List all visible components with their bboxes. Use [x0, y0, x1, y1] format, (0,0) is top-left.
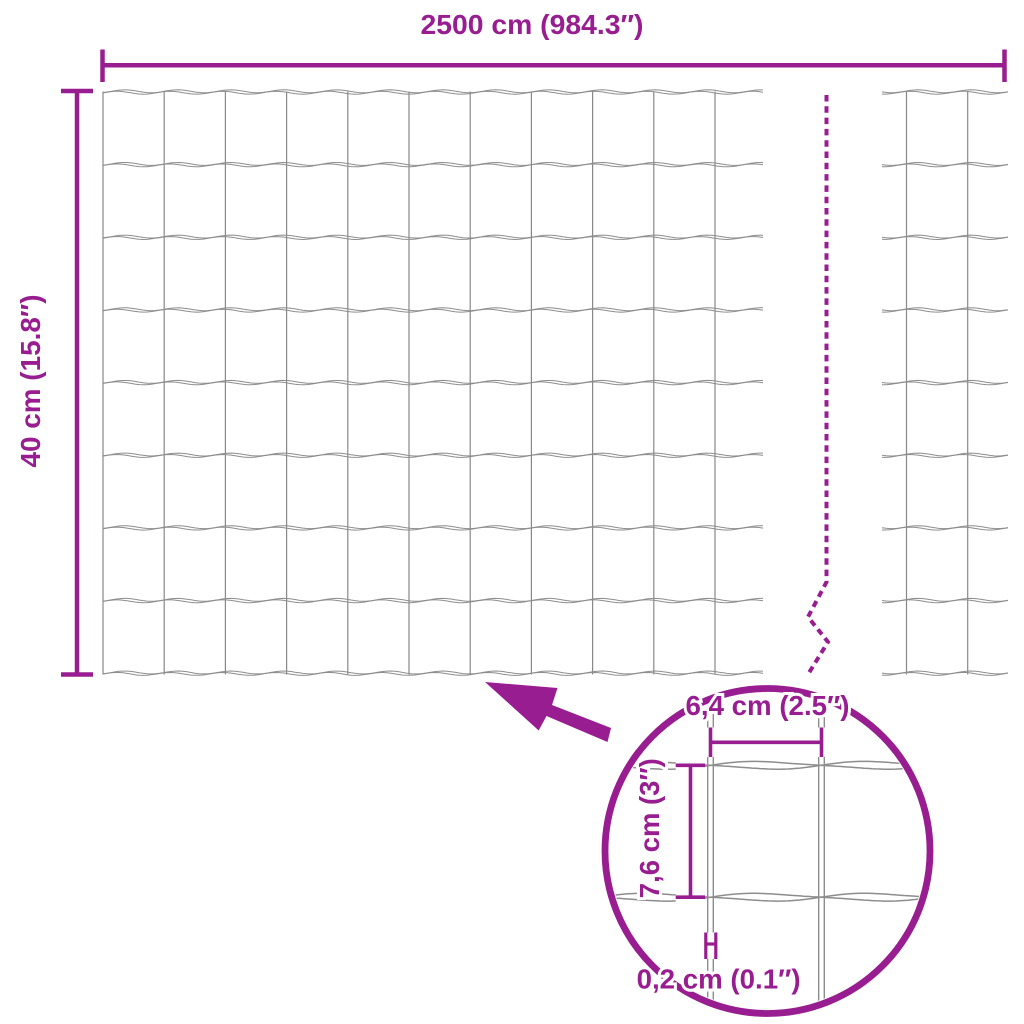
svg-text:0,2 cm (0.1″): 0,2 cm (0.1″): [637, 963, 801, 994]
svg-text:2500 cm (984.3″): 2500 cm (984.3″): [421, 9, 644, 40]
svg-text:7,6 cm (3″): 7,6 cm (3″): [634, 758, 665, 898]
svg-text:40 cm (15.8″): 40 cm (15.8″): [15, 295, 46, 468]
svg-text:6,4 cm (2.5″): 6,4 cm (2.5″): [686, 690, 850, 721]
